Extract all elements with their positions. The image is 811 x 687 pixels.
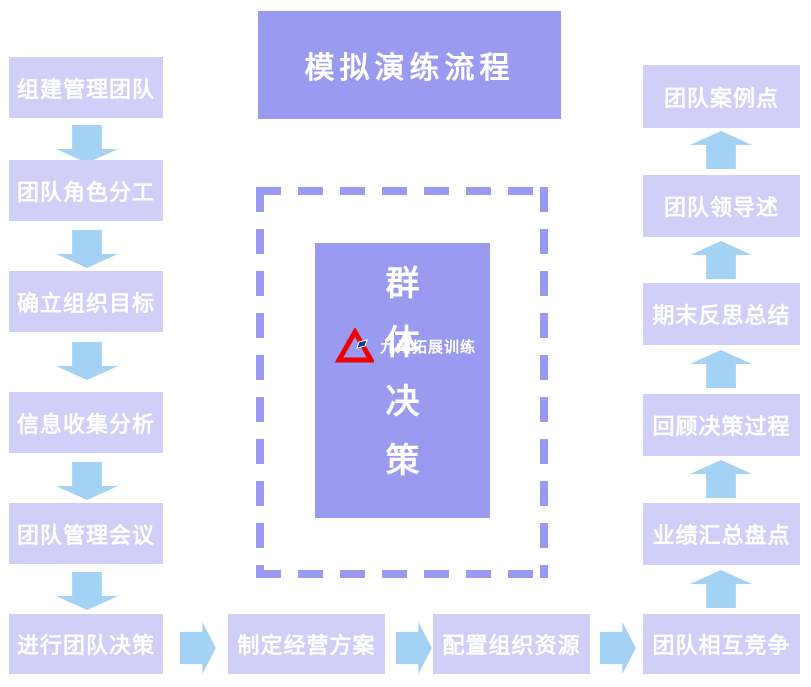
vertical-char: 策: [386, 444, 420, 478]
up-arrow-icon: [690, 241, 752, 279]
flow-step-make-team-decision: 进行团队决策: [9, 614, 163, 674]
flow-step-build-management-team: 组建管理团队: [9, 57, 163, 118]
flow-step-info-collection-analysis: 信息收集分析: [9, 392, 163, 453]
flow-step-make-business-plan: 制定经营方案: [228, 614, 385, 674]
dashed-border-left: [256, 187, 264, 578]
logo-text: 九州拓展训练: [380, 336, 476, 357]
right-arrow-icon: [180, 622, 216, 674]
watermark-logo: 九州拓展训练: [334, 328, 476, 364]
flow-step-review-decision-process: 回顾决策过程: [643, 394, 800, 456]
up-arrow-icon: [690, 460, 752, 498]
right-arrow-icon: [600, 622, 636, 674]
up-arrow-icon: [690, 570, 752, 608]
flow-step-team-role-division: 团队角色分工: [9, 160, 163, 221]
vertical-char: 群: [386, 267, 420, 301]
flow-step-team-competition: 团队相互竞争: [643, 614, 800, 674]
down-arrow-icon: [56, 342, 118, 380]
up-arrow-icon: [690, 131, 752, 169]
down-arrow-icon: [56, 230, 118, 268]
flow-step-allocate-org-resources: 配置组织资源: [433, 614, 590, 674]
dashed-border-right: [540, 187, 548, 578]
down-arrow-icon: [56, 462, 118, 500]
group-decision-box: 群 体 决 策: [315, 243, 490, 518]
flow-step-set-org-goals: 确立组织目标: [9, 271, 163, 332]
flow-step-performance-summary: 业绩汇总盘点: [643, 503, 800, 565]
flow-step-team-management-meeting: 团队管理会议: [9, 503, 163, 564]
up-arrow-icon: [690, 350, 752, 388]
dashed-border-bottom: [256, 570, 548, 578]
vertical-char: 决: [386, 385, 420, 419]
flow-step-team-case-review: 团队案例点: [643, 65, 800, 128]
red-triangle-icon: [334, 328, 374, 364]
dashed-border-top: [256, 187, 548, 195]
simulation-flow-diagram: 模拟演练流程 组建管理团队 团队角色分工 确立组织目标 信息收集分析 团队管理会…: [0, 0, 811, 687]
right-arrow-icon: [396, 622, 432, 674]
down-arrow-icon: [56, 125, 118, 163]
diagram-title: 模拟演练流程: [258, 11, 561, 119]
flow-step-team-leader-report: 团队领导述: [643, 175, 800, 237]
flow-step-final-reflection-summary: 期末反思总结: [643, 283, 800, 345]
down-arrow-icon: [56, 572, 118, 610]
